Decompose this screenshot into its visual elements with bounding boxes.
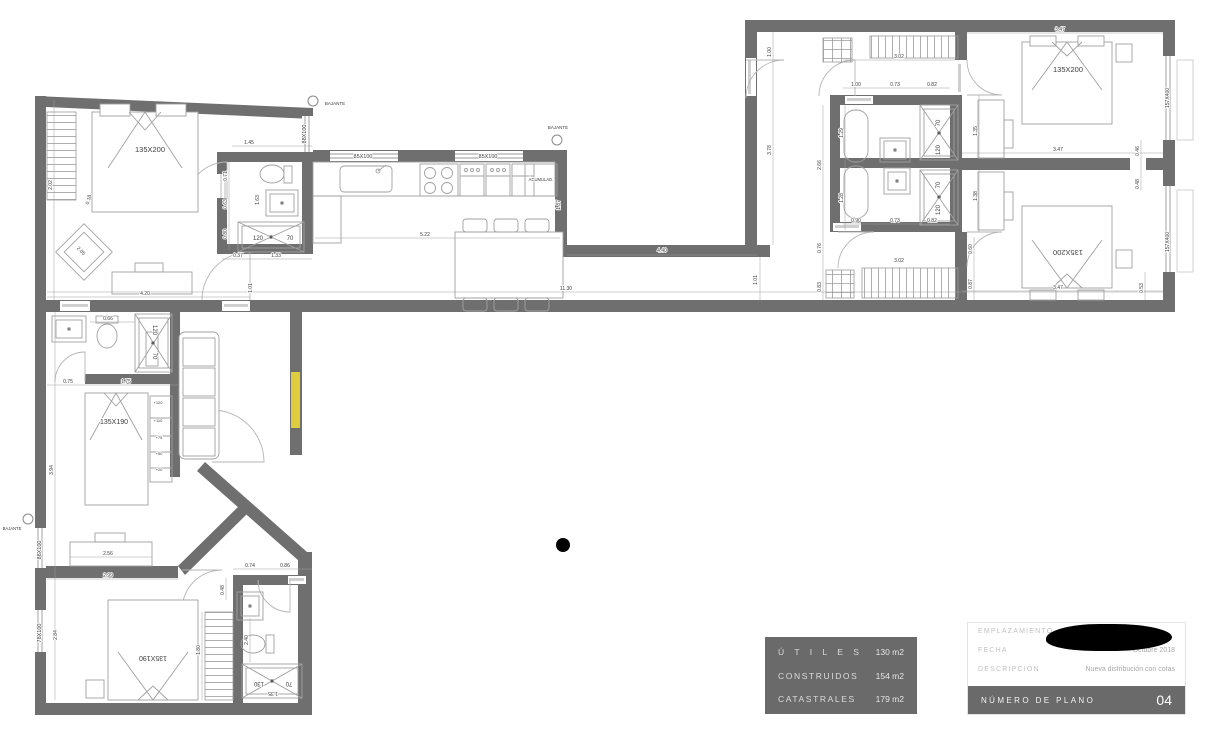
window-size-label: 157X400	[1165, 88, 1171, 108]
dimension-label: 0.48	[1135, 179, 1141, 189]
bathtub	[844, 110, 868, 162]
bajante-label: BAJANTE	[325, 101, 345, 106]
areas-label: CATASTRALES	[778, 694, 856, 704]
dimension-label: 3.78	[767, 145, 773, 155]
shower-size-label: 70	[936, 181, 942, 188]
dimension-label: 1.75	[121, 379, 131, 385]
sink	[52, 316, 86, 342]
dimension-label: 2.02	[48, 180, 54, 190]
sink	[266, 190, 298, 216]
dimension-label: 0.75	[63, 379, 73, 385]
areas-value: 179 m2	[876, 694, 904, 704]
dimension-label: 0.46	[1135, 146, 1141, 156]
bed-double	[1022, 36, 1112, 124]
areas-label: CONSTRUIDOS	[778, 671, 858, 681]
dresser	[112, 263, 192, 294]
window-size-label: 157X400	[1165, 232, 1171, 252]
window-size-label: 85X100	[354, 154, 373, 160]
dimension-label: 3.47	[1053, 285, 1063, 291]
cooktop	[420, 164, 458, 196]
shaft-icon	[826, 270, 854, 298]
bed-size-label: 135X190	[100, 419, 128, 426]
kitchen-sink	[340, 165, 392, 192]
bathtub	[844, 166, 868, 218]
descripcion-value: Nueva distribución con cotas	[1086, 666, 1176, 673]
shelf-height-label: +75	[156, 435, 164, 440]
washer-icon	[460, 164, 484, 196]
floorplan-sheet: 1.450.710.630.801.630.371.331.012.020.18…	[0, 0, 1222, 739]
desk	[70, 533, 152, 566]
dimension-label: 1.01	[248, 283, 254, 293]
shelf-height-label: +20	[156, 467, 164, 472]
dimension-label: 0.87	[968, 279, 974, 289]
desk	[978, 172, 1013, 230]
radiator-icon	[870, 36, 958, 58]
dimension-label: 4.40	[657, 248, 667, 254]
dimension-label: 1.35	[268, 690, 278, 696]
dimension-label: 2.84	[53, 630, 59, 640]
areas-value: 130 m2	[876, 647, 904, 657]
bed-size-label: 135X190	[139, 654, 167, 661]
shelf-height-label: +120	[153, 400, 163, 405]
dimension-label: 1.35	[973, 126, 979, 136]
sink	[237, 592, 263, 620]
bajante-icon	[552, 135, 562, 145]
window-size-label: 78X100	[37, 624, 43, 643]
dimension-label: 0.66	[103, 316, 113, 322]
dimension-label: 0.82	[927, 82, 937, 88]
dimension-label: 2.05	[75, 246, 86, 257]
bed-double	[85, 393, 148, 505]
acumulador-label: ACUMULAD.	[529, 177, 554, 182]
bajante-icon	[23, 514, 33, 524]
wall-shelf	[146, 332, 158, 366]
dimension-label: 2.40	[244, 635, 250, 645]
toilet	[260, 165, 292, 183]
window-size-label: 88X100	[37, 541, 43, 560]
dimension-label: 0.48	[220, 585, 226, 595]
dimension-label: 0.53	[1139, 283, 1145, 293]
redaction-dot	[556, 538, 570, 552]
dimension-label: 0.80	[223, 229, 229, 239]
dimension-label: 0.74	[245, 563, 255, 569]
radiator-icon	[205, 612, 233, 700]
dimension-label: 0.37	[233, 253, 243, 259]
shaft-icon	[823, 38, 852, 62]
highlight-marker	[291, 372, 300, 428]
dimension-label: 0.60	[968, 244, 974, 254]
dimension-label: 4.20	[140, 291, 150, 297]
dimension-label: 3.94	[49, 465, 55, 475]
shelf-height-label: +50	[156, 451, 164, 456]
shower-size-label: 120	[936, 144, 942, 155]
bed-double	[92, 104, 198, 212]
dimension-label: 0.73	[890, 218, 900, 224]
dimension-label: 1.28	[839, 193, 845, 203]
redaction-blob	[1046, 624, 1172, 651]
dimension-label: 1.80	[196, 645, 202, 655]
shower-size-label: 120	[151, 325, 157, 336]
nightstand	[86, 680, 104, 698]
areas-row-construidos: CONSTRUIDOS 154 m2	[778, 671, 904, 681]
dimension-label: 1.00	[767, 47, 773, 57]
plan-number-label: NÚMERO DE PLANO	[981, 696, 1095, 705]
sink	[884, 168, 910, 194]
dimension-label: 2.56	[103, 551, 113, 557]
dimension-label: 1.00	[851, 82, 861, 88]
dimension-label: 1.33	[271, 253, 281, 259]
dimension-label: 5.22	[420, 232, 430, 238]
dimension-label: 2.66	[817, 160, 823, 170]
furniture	[52, 36, 1132, 700]
dimension-label: 1.63	[255, 195, 261, 205]
dimension-label: 1.38	[973, 191, 979, 201]
dimension-label: 0.86	[280, 563, 290, 569]
bed-size-label: 135X200	[1053, 65, 1083, 74]
dryer-icon	[486, 164, 510, 196]
shower-size-label: 120	[936, 204, 942, 215]
dining-table	[455, 219, 563, 311]
dimension-label: 2.99	[103, 573, 113, 579]
shower-tray	[135, 314, 172, 372]
dimension-label: 0.83	[817, 282, 823, 292]
title-block-info: EMPLAZAMIENTO FECHA Octubre 2018 DESCRIP…	[968, 623, 1185, 686]
window-size-label: 85X100	[479, 154, 498, 160]
window-157x400-b	[1163, 186, 1193, 272]
areas-row-catastrales: CATASTRALES 179 m2	[778, 694, 904, 704]
shower-size-label: 120	[253, 236, 264, 242]
dimension-label: 3.02	[894, 54, 904, 60]
bajante-label: BAJANTE	[548, 125, 568, 130]
descripcion-label: DESCRIPCIÓN	[978, 666, 1040, 673]
dimension-label: 0.82	[927, 218, 937, 224]
window-size-label: 88X100	[302, 125, 308, 144]
dimension-label: 3.02	[894, 258, 904, 264]
descripcion-row: DESCRIPCIÓN Nueva distribución con cotas	[978, 666, 1175, 684]
plan-number-value: 04	[1156, 692, 1172, 708]
dimension-label: 0.76	[817, 243, 823, 253]
nightstand	[1116, 44, 1132, 62]
kitchen-counter	[313, 162, 555, 243]
dimension-label: 1.01	[753, 275, 759, 285]
bajante-label: BAJANTE	[3, 526, 22, 531]
dimension-label: 0.63	[223, 199, 229, 209]
shower-size-label: 70	[151, 353, 157, 360]
dimension-label: 3.47	[1055, 27, 1065, 33]
dimension-label: 0.90	[851, 218, 861, 224]
dimension-label: 11.30	[560, 286, 572, 292]
fecha-label: FECHA	[978, 647, 1008, 654]
bed-size-label: 135X200	[135, 145, 165, 154]
emplazamiento-label: EMPLAZAMIENTO	[978, 628, 1053, 635]
dimension-label: 0.73	[890, 82, 900, 88]
title-block: EMPLAZAMIENTO FECHA Octubre 2018 DESCRIP…	[967, 622, 1186, 715]
areas-value: 154 m2	[876, 671, 904, 681]
dimension-label: 1.29	[839, 128, 845, 138]
areas-label: Ú T I L E S	[778, 647, 863, 657]
dimension-label: 1.87	[556, 200, 562, 210]
bed-double	[108, 600, 198, 700]
dimension-label: 0.71	[223, 171, 229, 181]
desk	[978, 100, 1013, 158]
dimension-label: 3.47	[1053, 147, 1063, 153]
areas-summary-panel: Ú T I L E S 130 m2 CONSTRUIDOS 154 m2 CA…	[765, 637, 917, 714]
shower-size-label: 70	[936, 119, 942, 126]
bed-size-label: 135X200	[1053, 248, 1083, 257]
shower-size-label: 130	[253, 680, 264, 686]
bajante-icon	[308, 96, 318, 106]
radiator-icon	[862, 268, 958, 298]
shower-size-label: 70	[287, 236, 294, 242]
areas-row-utiles: Ú T I L E S 130 m2	[778, 647, 904, 657]
sofa	[179, 332, 219, 459]
dimension-label: 1.45	[244, 140, 254, 146]
nightstand	[1116, 250, 1132, 268]
plan-number-bar: NÚMERO DE PLANO 04	[968, 686, 1185, 714]
shower-size-label: 70	[285, 680, 292, 686]
shelf-height-label: +110	[154, 418, 163, 423]
